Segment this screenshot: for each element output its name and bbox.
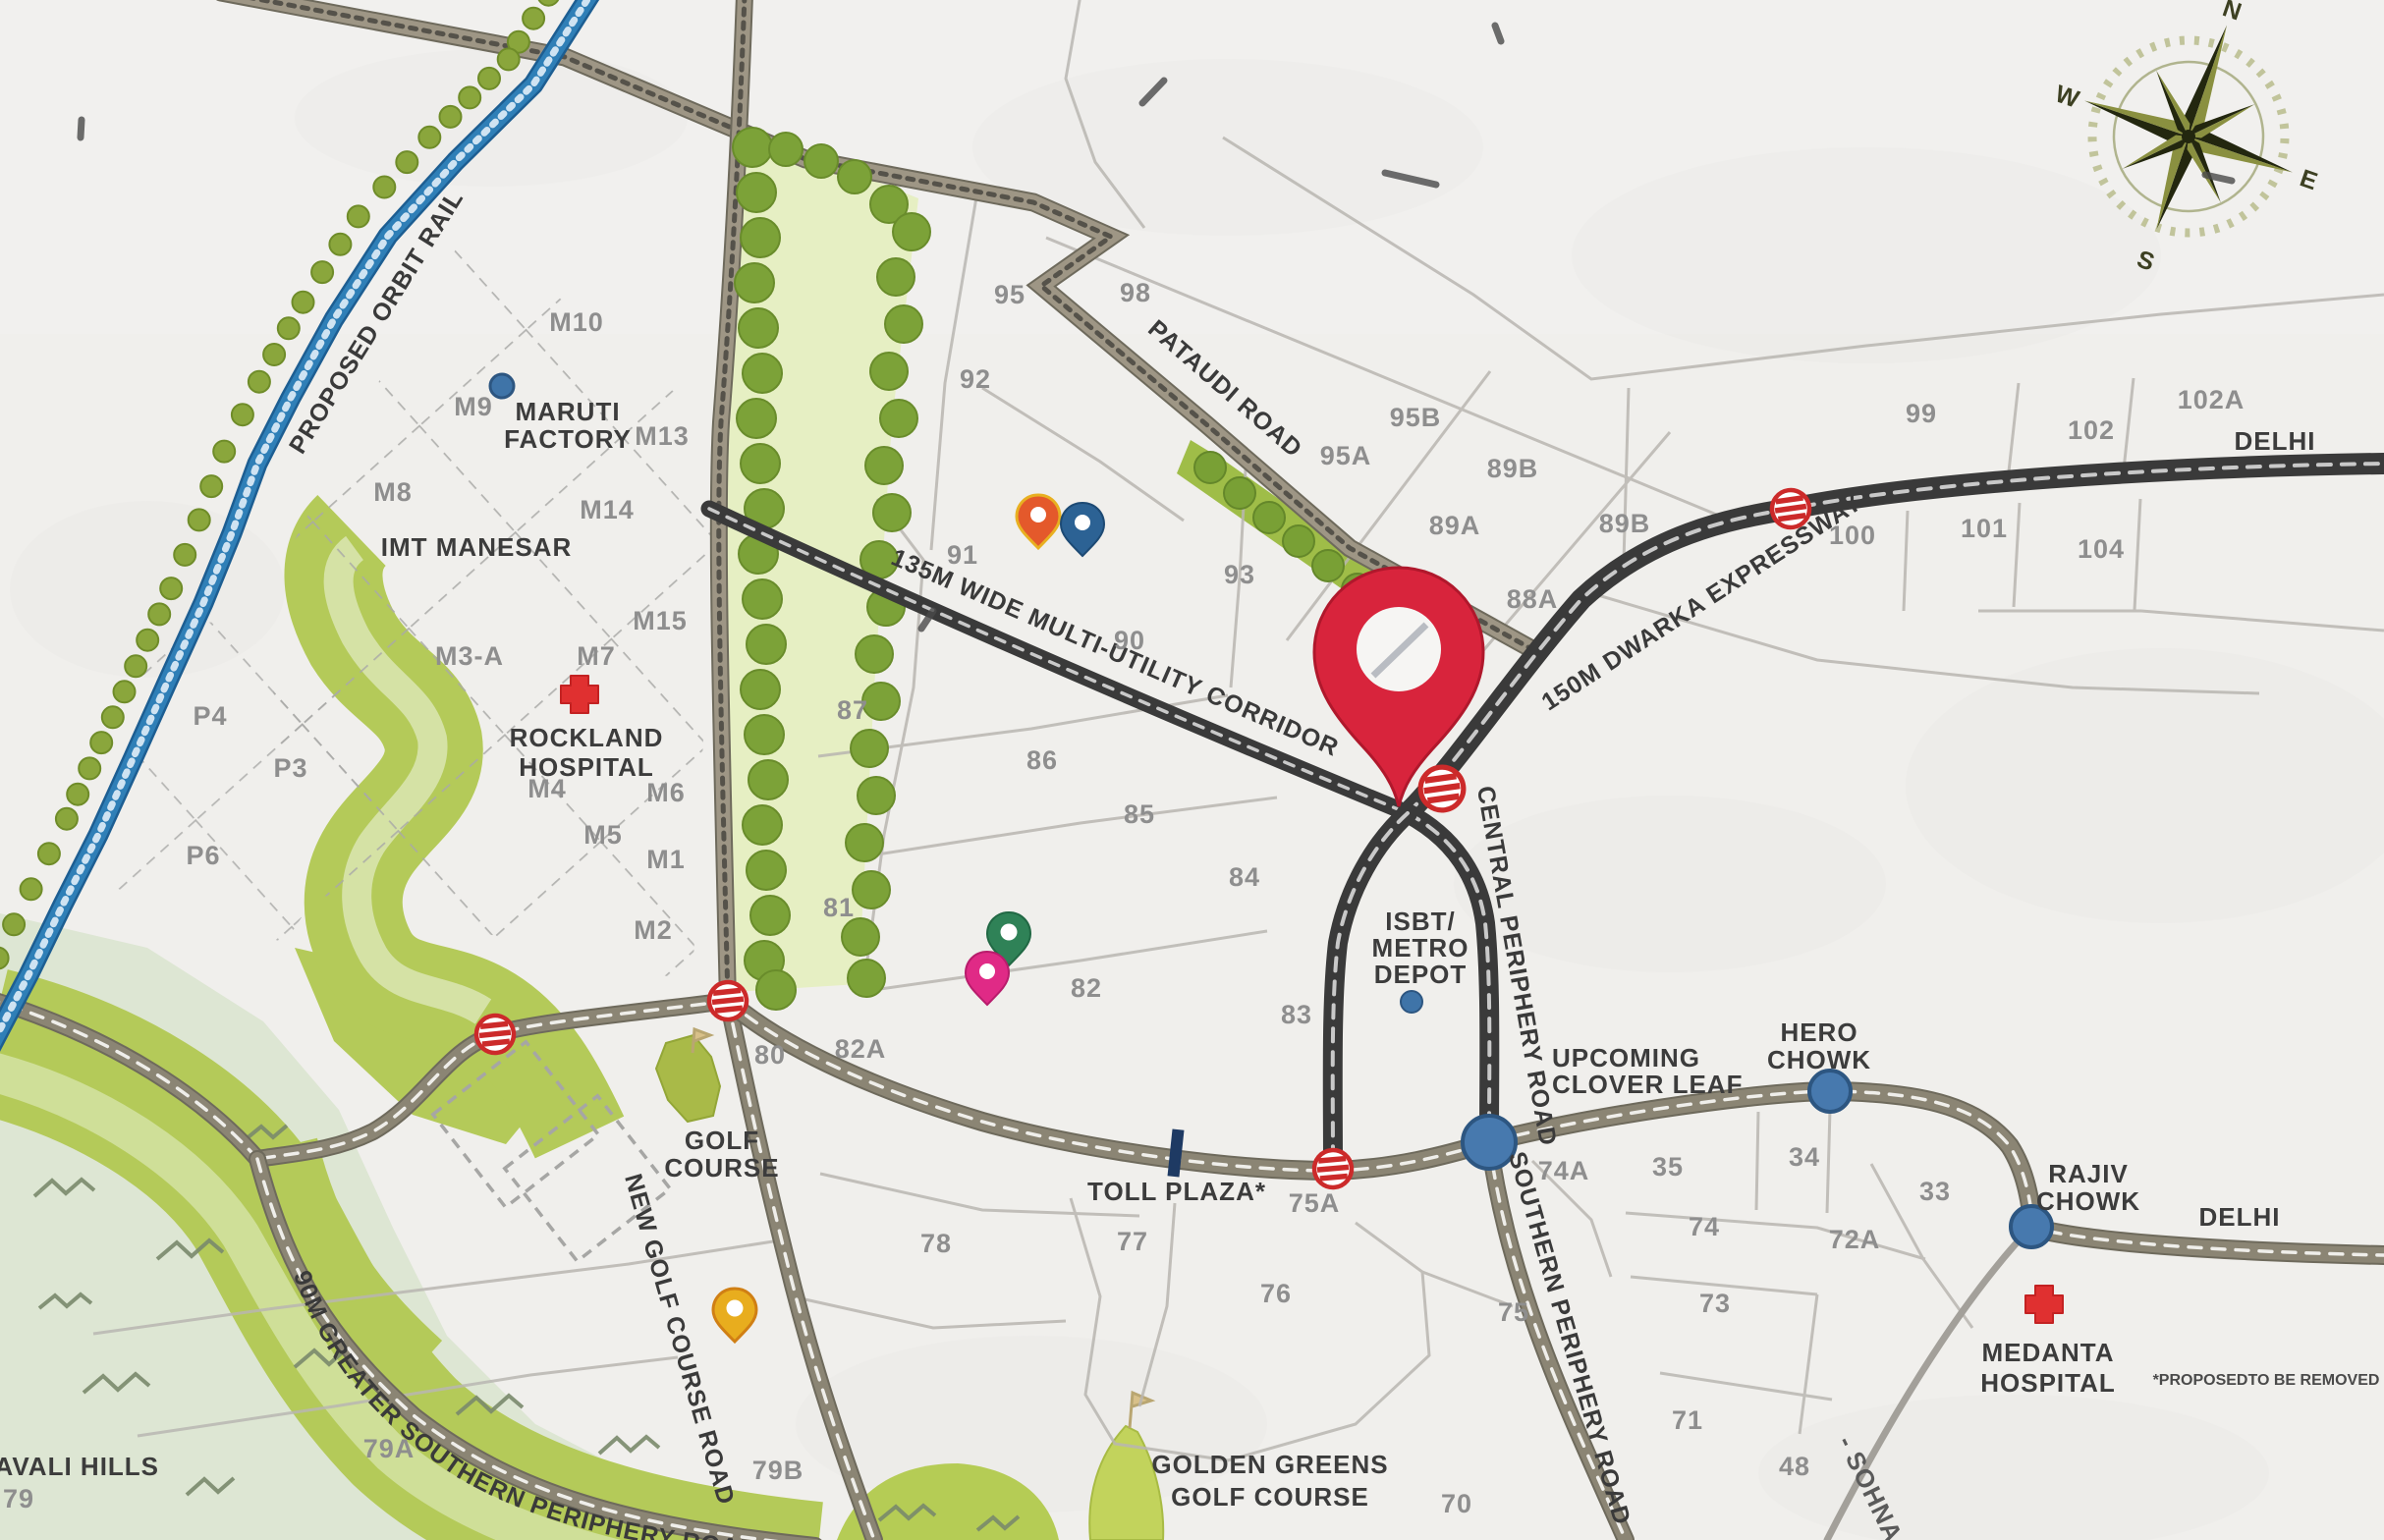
svg-text:DEPOT: DEPOT xyxy=(1374,960,1468,989)
svg-text:TOLL PLAZA*: TOLL PLAZA* xyxy=(1087,1177,1266,1206)
svg-text:M4: M4 xyxy=(527,774,567,803)
svg-text:75A: 75A xyxy=(1289,1188,1341,1218)
svg-text:CHOWK: CHOWK xyxy=(2036,1186,2140,1216)
svg-text:MEDANTA: MEDANTA xyxy=(1981,1338,2114,1367)
svg-text:89B: 89B xyxy=(1487,454,1539,483)
svg-text:FACTORY: FACTORY xyxy=(504,424,632,454)
svg-text:91: 91 xyxy=(947,540,978,570)
svg-text:73: 73 xyxy=(1699,1289,1731,1318)
svg-text:MARUTI: MARUTI xyxy=(515,397,620,426)
svg-text:DELHI: DELHI xyxy=(2199,1202,2281,1232)
svg-text:82A: 82A xyxy=(835,1034,887,1064)
svg-text:M13: M13 xyxy=(635,421,690,451)
svg-text:76: 76 xyxy=(1260,1279,1292,1308)
svg-text:M3-A: M3-A xyxy=(435,641,504,671)
svg-text:P3: P3 xyxy=(273,753,307,783)
svg-text:77: 77 xyxy=(1117,1227,1148,1256)
svg-text:M2: M2 xyxy=(634,915,673,945)
svg-text:79A: 79A xyxy=(363,1434,416,1463)
svg-text:M14: M14 xyxy=(580,495,635,524)
svg-text:GOLF COURSE: GOLF COURSE xyxy=(1171,1482,1369,1512)
svg-text:85: 85 xyxy=(1124,799,1155,829)
svg-text:70: 70 xyxy=(1441,1489,1472,1518)
svg-text:102: 102 xyxy=(2068,415,2115,445)
svg-text:78: 78 xyxy=(920,1229,952,1258)
svg-text:99: 99 xyxy=(1906,399,1937,428)
svg-text:88A: 88A xyxy=(1507,584,1559,614)
svg-text:GOLF: GOLF xyxy=(685,1126,759,1155)
svg-text:UPCOMING: UPCOMING xyxy=(1552,1043,1700,1072)
svg-text:34: 34 xyxy=(1789,1142,1820,1172)
svg-text:74A: 74A xyxy=(1538,1156,1590,1185)
svg-text:METRO: METRO xyxy=(1372,933,1469,962)
svg-text:90: 90 xyxy=(1114,626,1145,655)
svg-text:*PROPOSEDTO BE REMOVED: *PROPOSEDTO BE REMOVED xyxy=(2153,1372,2380,1389)
svg-text:74: 74 xyxy=(1689,1212,1720,1241)
svg-text:M5: M5 xyxy=(583,820,623,850)
svg-text:P4: P4 xyxy=(193,701,227,731)
svg-text:M6: M6 xyxy=(646,778,686,807)
svg-text:M10: M10 xyxy=(549,307,604,337)
svg-text:HOSPITAL: HOSPITAL xyxy=(1980,1368,2116,1398)
svg-text:33: 33 xyxy=(1919,1177,1951,1206)
svg-text:89A: 89A xyxy=(1429,511,1481,540)
svg-text:100: 100 xyxy=(1829,521,1876,550)
svg-text:IMT MANESAR: IMT MANESAR xyxy=(381,532,572,562)
svg-text:95B: 95B xyxy=(1390,403,1442,432)
svg-text:48: 48 xyxy=(1779,1452,1810,1481)
svg-text:80: 80 xyxy=(754,1040,786,1070)
svg-text:104: 104 xyxy=(2078,534,2125,564)
svg-text:102A: 102A xyxy=(2178,385,2245,414)
svg-text:79B: 79B xyxy=(752,1456,804,1485)
svg-text:P6: P6 xyxy=(186,841,220,870)
svg-text:RAJIV: RAJIV xyxy=(2048,1159,2129,1188)
svg-text:93: 93 xyxy=(1224,560,1255,589)
svg-text:89B: 89B xyxy=(1599,509,1651,538)
svg-text:M7: M7 xyxy=(577,641,616,671)
svg-text:86: 86 xyxy=(1026,745,1058,775)
svg-text:GOLDEN GREENS: GOLDEN GREENS xyxy=(1151,1450,1388,1479)
svg-text:CHOWK: CHOWK xyxy=(1767,1045,1871,1074)
svg-text:83: 83 xyxy=(1281,1000,1312,1029)
svg-text:ROCKLAND: ROCKLAND xyxy=(510,723,664,752)
svg-text:95A: 95A xyxy=(1320,441,1372,470)
svg-text:95: 95 xyxy=(994,280,1026,309)
svg-text:82: 82 xyxy=(1071,973,1102,1003)
svg-text:35: 35 xyxy=(1652,1152,1684,1182)
svg-text:101: 101 xyxy=(1961,514,2008,543)
svg-text:81: 81 xyxy=(823,893,855,922)
svg-text:M8: M8 xyxy=(373,477,413,507)
svg-text:84: 84 xyxy=(1229,862,1260,892)
svg-text:COURSE: COURSE xyxy=(664,1153,779,1182)
svg-text:HERO: HERO xyxy=(1780,1017,1857,1047)
svg-text:71: 71 xyxy=(1672,1405,1703,1435)
svg-text:75: 75 xyxy=(1498,1297,1529,1327)
svg-text:DELHI: DELHI xyxy=(2235,426,2316,456)
svg-text:79: 79 xyxy=(3,1484,34,1513)
svg-text:98: 98 xyxy=(1120,278,1151,307)
svg-text:ARAVALI HILLS: ARAVALI HILLS xyxy=(0,1452,159,1481)
svg-text:92: 92 xyxy=(960,364,991,394)
svg-text:M15: M15 xyxy=(633,606,688,635)
svg-text:CLOVER LEAF: CLOVER LEAF xyxy=(1552,1070,1743,1099)
svg-text:M9: M9 xyxy=(454,392,493,421)
svg-text:ISBT/: ISBT/ xyxy=(1385,907,1455,936)
svg-text:M1: M1 xyxy=(646,845,686,874)
svg-text:87: 87 xyxy=(837,695,868,725)
svg-text:72A: 72A xyxy=(1829,1225,1881,1254)
